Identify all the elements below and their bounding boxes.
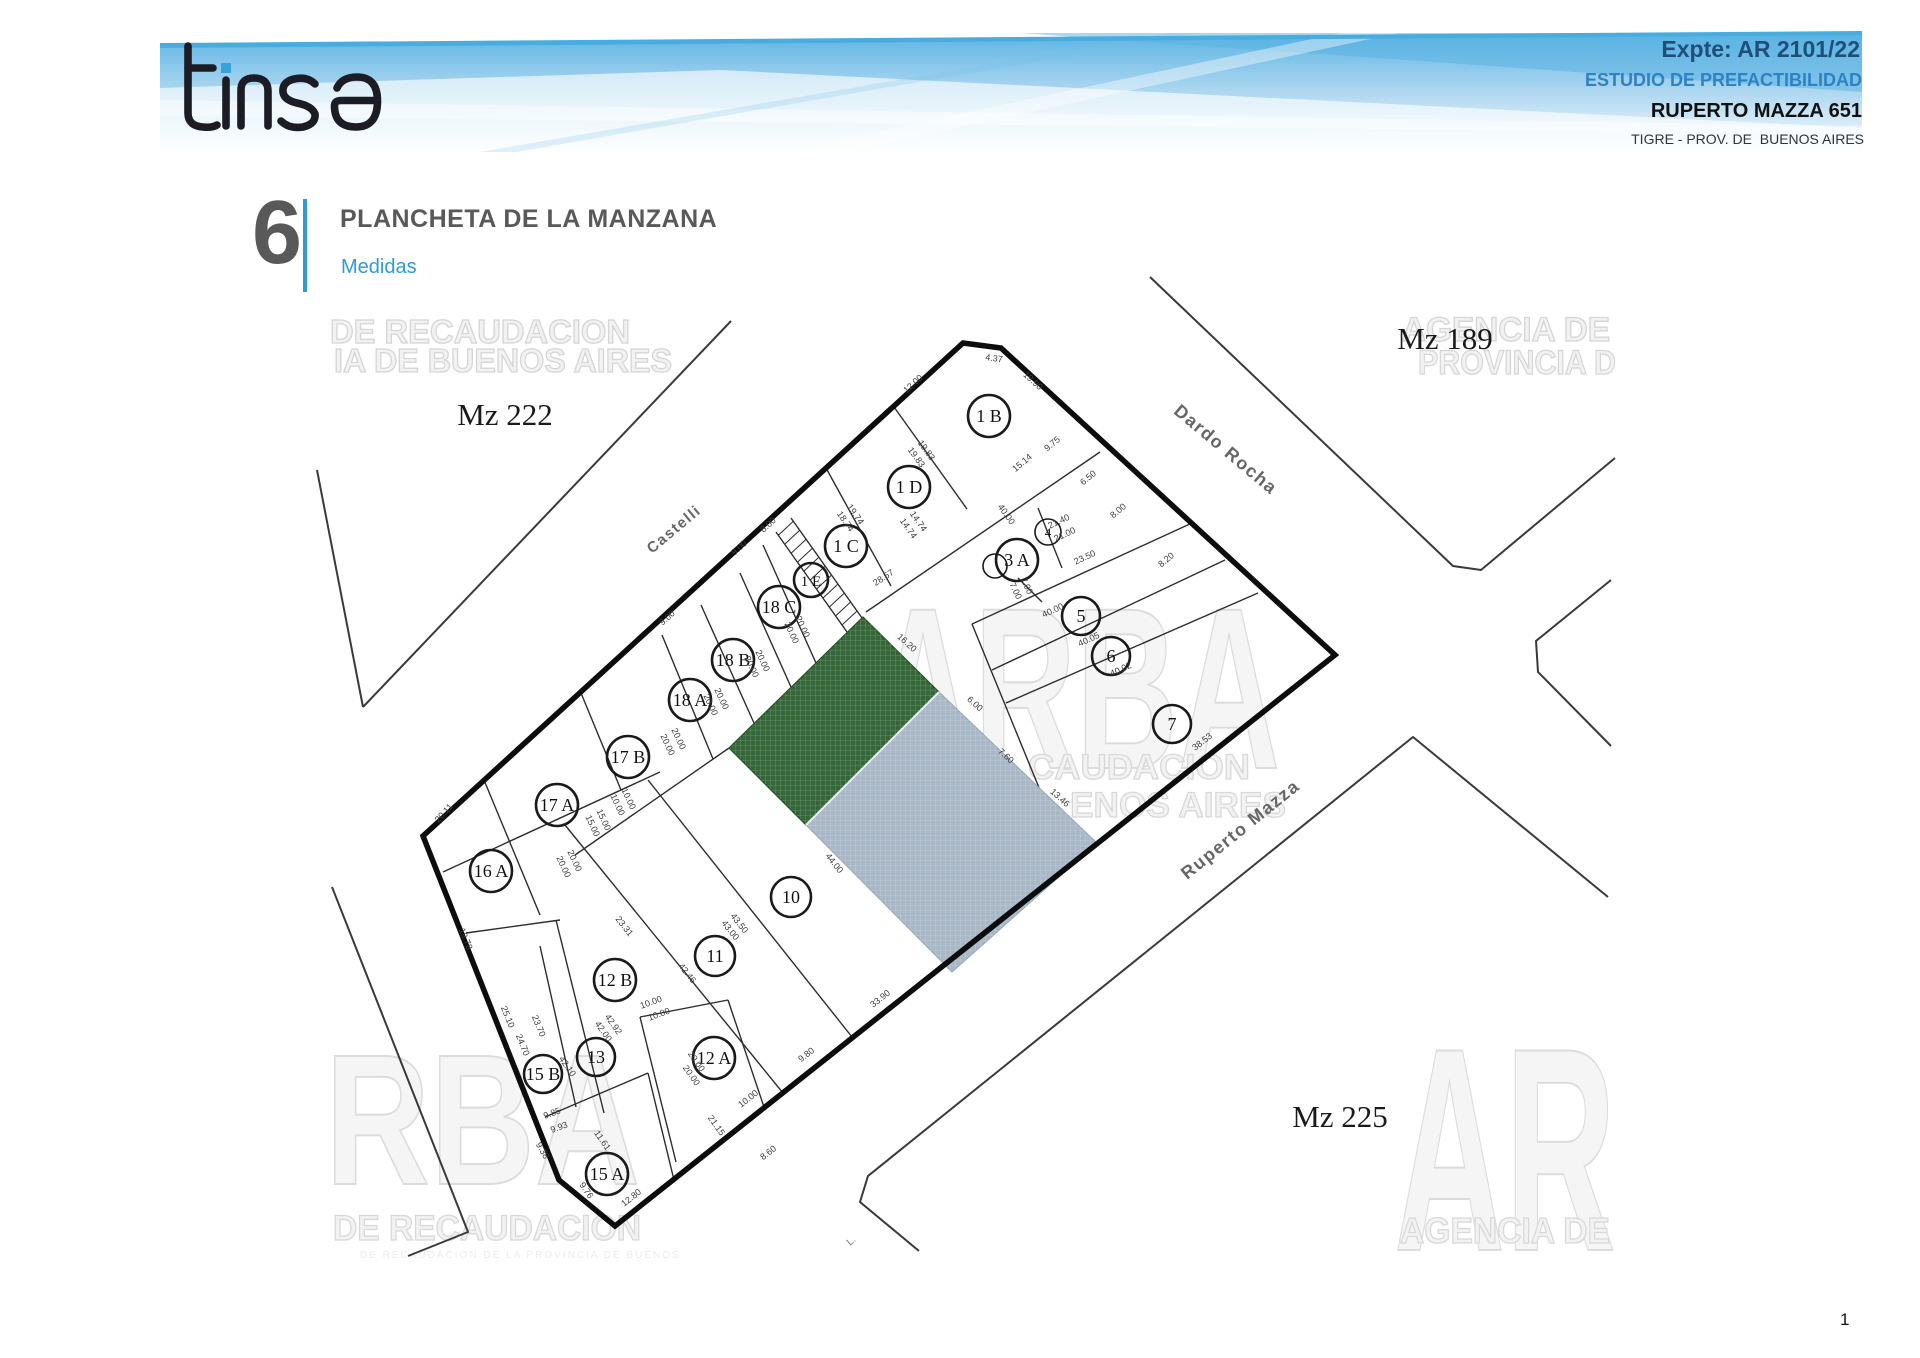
svg-text:7: 7 [1168,714,1177,734]
svg-text:8.00: 8.00 [1108,501,1128,520]
svg-text:6.50: 6.50 [1078,468,1098,487]
svg-text:Mz 222: Mz 222 [457,397,553,432]
svg-text:12 B: 12 B [598,970,633,990]
svg-text:13: 13 [587,1047,605,1067]
svg-text:8.60: 8.60 [758,1143,778,1162]
svg-text:1 C: 1 C [833,536,859,556]
svg-text:17 A: 17 A [540,795,575,815]
svg-text:AR: AR [1394,988,1616,1312]
svg-text:40.00: 40.00 [996,502,1017,526]
svg-text:CAUDACION: CAUDACION [1028,748,1250,787]
svg-text:10.00: 10.00 [736,1088,760,1110]
svg-text:Dardo Rocha: Dardo Rocha [1170,400,1281,498]
svg-text:1 D: 1 D [896,477,923,497]
svg-text:15.14: 15.14 [1010,452,1034,474]
svg-text:11: 11 [706,946,723,966]
svg-text:15 B: 15 B [526,1064,561,1084]
svg-text:21.15: 21.15 [706,1113,727,1137]
svg-text:DE RECAUDACION: DE RECAUDACION [333,1209,641,1248]
svg-text:19.78: 19.78 [457,927,475,952]
svg-text:6: 6 [1107,646,1116,666]
svg-text:AGENCIA DE: AGENCIA DE [1400,1210,1610,1251]
svg-text:Mz 225: Mz 225 [1292,1099,1388,1134]
svg-text:1 E: 1 E [801,574,821,590]
svg-text:3 A: 3 A [1004,550,1030,570]
svg-text:9.80: 9.80 [796,1045,816,1064]
svg-text:9.00: 9.00 [657,608,677,627]
svg-text:5: 5 [1077,606,1086,626]
svg-text:IA DE BUENOS AIRES: IA DE BUENOS AIRES [334,342,672,379]
svg-text:Mz 189: Mz 189 [1397,321,1493,356]
svg-text:15 A: 15 A [590,1164,625,1184]
svg-text:10.00: 10.00 [647,1006,672,1023]
svg-text:Castelli: Castelli [644,502,705,557]
svg-text:16 A: 16 A [474,861,509,881]
svg-text:9.75: 9.75 [1042,434,1062,453]
svg-text:18 C: 18 C [762,597,797,617]
svg-text:L.: L. [845,1235,858,1249]
svg-text:1 B: 1 B [976,406,1002,426]
svg-text:17 B: 17 B [611,747,646,767]
svg-text:4.37: 4.37 [985,352,1004,364]
svg-text:10: 10 [782,887,800,907]
svg-text:18 A: 18 A [673,690,708,710]
svg-text:23.31: 23.31 [613,914,635,938]
svg-text:42.46: 42.46 [676,961,698,985]
